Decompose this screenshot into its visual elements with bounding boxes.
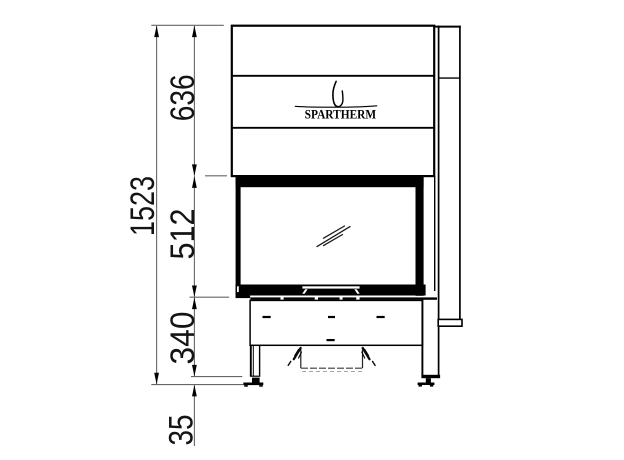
svg-text:636: 636: [164, 74, 202, 121]
svg-text:SPARTHERM: SPARTHERM: [305, 107, 377, 122]
svg-text:35: 35: [163, 415, 201, 446]
svg-text:512: 512: [164, 209, 202, 260]
svg-text:1523: 1523: [124, 176, 162, 236]
svg-text:340: 340: [164, 312, 202, 365]
